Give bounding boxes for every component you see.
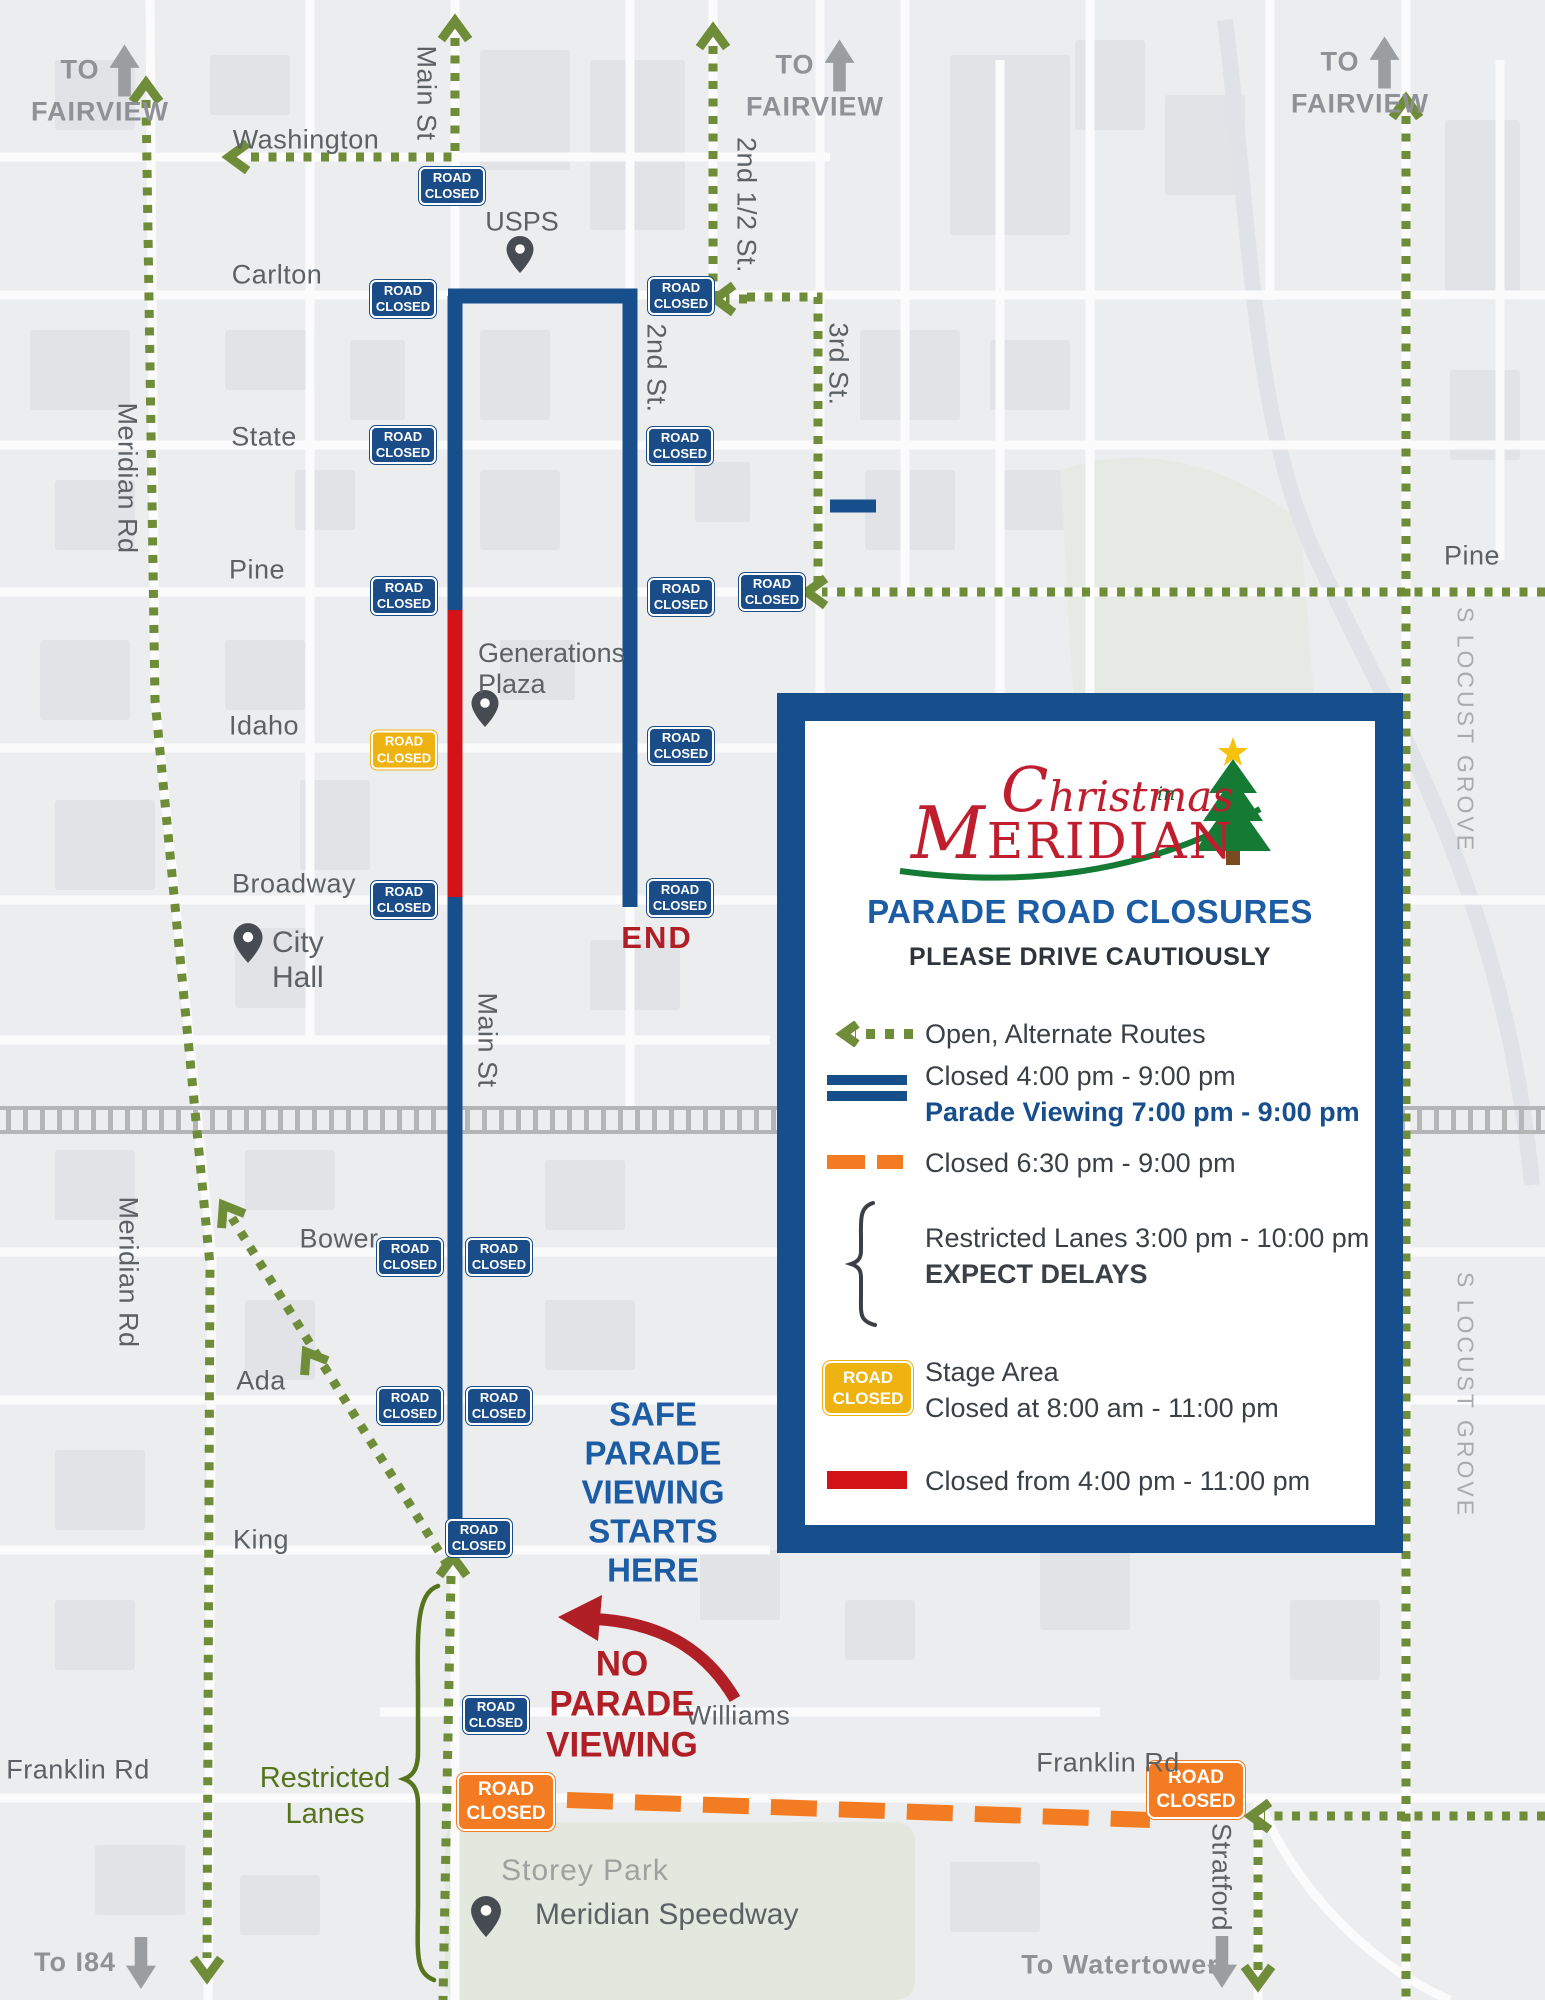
no-parade-viewing-label: NO PARADE VIEWING — [546, 1645, 698, 1766]
street-label-main-st: Main St — [472, 992, 503, 1087]
poi-label-usps: USPS — [485, 206, 559, 237]
safe-viewing-label: SAFE PARADE VIEWING STARTS HERE — [581, 1396, 724, 1591]
legend-box: Christmas in MERIDIAN PARADE ROAD CLOSUR… — [777, 693, 1403, 1553]
street-label-franklin-west: Franklin Rd — [6, 1755, 150, 1786]
street-label-2nd-half-st: 2nd 1/2 St. — [731, 137, 762, 273]
road-closed-badge: ROADCLOSED — [647, 879, 713, 917]
road-closed-badge: ROADCLOSED — [648, 727, 714, 765]
poi-label-storey-park: Storey Park — [501, 1854, 669, 1888]
direction-text: FAIRVIEW — [31, 96, 169, 127]
christmas-in-meridian-logo: Christmas in MERIDIAN — [805, 731, 1375, 891]
road-closed-badge: ROADCLOSED — [463, 1696, 529, 1734]
usps-pin-icon — [507, 236, 534, 278]
road-closed-badge: ROADCLOSED — [370, 426, 436, 464]
road-closed-badge: ROADCLOSED — [371, 881, 437, 919]
street-label-williams: Williams — [686, 1701, 791, 1732]
street-label-pine-east: Pine — [1444, 541, 1500, 572]
road-closed-badge: ROADCLOSED — [371, 577, 437, 615]
street-label-king: King — [233, 1525, 289, 1556]
city-hall-pin-icon — [234, 923, 263, 968]
legend-closed-red-label: Closed from 4:00 pm - 11:00 pm — [925, 1466, 1310, 1497]
street-label-meridian-rd-top: Meridian Rd — [112, 402, 143, 553]
road-closed-badge: ROADCLOSED — [377, 1238, 443, 1276]
up-arrow-icon — [825, 39, 855, 91]
closed-blue-swatch — [825, 1073, 917, 1103]
street-label-stratford: Stratford — [1206, 1823, 1237, 1931]
direction-text: FAIRVIEW — [1291, 88, 1429, 119]
street-label-carlton: Carlton — [232, 260, 323, 291]
street-label-locust-grove-top: S LOCUST GROVE — [1452, 607, 1479, 853]
legend-expect-delays-label: EXPECT DELAYS — [925, 1259, 1148, 1290]
speedway-pin-icon — [471, 1896, 501, 1942]
legend-parade-viewing-label: Parade Viewing 7:00 pm - 9:00 pm — [925, 1097, 1360, 1128]
poi-label-city-hall: City Hall — [272, 926, 324, 995]
direction-text: To Watertower — [1021, 1949, 1219, 1980]
restricted-brace — [843, 1199, 883, 1329]
road-closed-badge: ROADCLOSED — [377, 1387, 443, 1425]
street-label-main-st-top: Main St — [411, 45, 442, 140]
legend-subtitle: PLEASE DRIVE CAUTIOUSLY — [805, 943, 1375, 972]
up-arrow-icon — [1370, 36, 1400, 88]
logo-text-meridian: MERIDIAN — [911, 797, 1234, 869]
legend-stage-label-2: Closed at 8:00 am - 11:00 pm — [925, 1393, 1279, 1424]
road-closed-badge: ROADCLOSED — [648, 578, 714, 616]
stratford-down-arrow — [1207, 1936, 1237, 1988]
direction-text: FAIRVIEW — [746, 91, 884, 122]
stage-area-road-closed-badge: ROADCLOSED — [371, 731, 437, 770]
road-closed-badge: ROADCLOSED — [647, 427, 713, 465]
road-closed-badge: ROADCLOSED — [419, 167, 485, 205]
parade-end-label: END — [621, 920, 692, 956]
road-closed-badge: ROADCLOSED — [466, 1238, 532, 1276]
restricted-lanes-brace — [404, 1586, 438, 1980]
road-closed-badge: ROADCLOSED — [648, 277, 714, 315]
legend-stage-label-1: Stage Area — [925, 1357, 1059, 1388]
street-label-idaho: Idaho — [229, 711, 299, 742]
street-label-2nd-st: 2nd St. — [641, 323, 672, 412]
closed-orange-swatch — [825, 1153, 917, 1171]
direction-text: TO — [1320, 47, 1359, 78]
road-closed-badge: ROADCLOSED — [446, 1519, 512, 1557]
legend-closed-orange-label: Closed 6:30 pm - 9:00 pm — [925, 1148, 1236, 1179]
street-label-state: State — [231, 422, 297, 453]
legend-open-label: Open, Alternate Routes — [925, 1019, 1206, 1050]
closed-route-orange — [567, 1800, 1150, 1820]
up-arrow-icon — [110, 44, 140, 96]
street-label-washington: Washington — [233, 125, 380, 156]
road-closed-badge-orange: ROADCLOSED — [457, 1773, 555, 1831]
road-closed-badge: ROADCLOSED — [466, 1387, 532, 1425]
open-route-swatch — [825, 1021, 917, 1047]
poi-label-generations-plaza: Generations Plaza — [478, 638, 625, 700]
road-closed-badge: ROADCLOSED — [370, 280, 436, 318]
direction-to-fairview-mid: TO FAIRVIEW — [746, 39, 884, 122]
closed-red-swatch — [825, 1469, 917, 1491]
legend-stage-badge: ROADCLOSED — [823, 1361, 913, 1415]
street-label-ada: Ada — [236, 1366, 286, 1397]
direction-text: TO — [60, 55, 99, 86]
direction-text: To I84 — [34, 1947, 116, 1978]
down-arrow-icon — [1207, 1936, 1237, 1988]
direction-to-fairview-left: TO FAIRVIEW — [31, 44, 169, 127]
restricted-lanes-label: Restricted Lanes — [260, 1760, 391, 1833]
road-closed-badge: ROADCLOSED — [739, 573, 805, 611]
down-arrow-icon — [126, 1937, 156, 1989]
street-label-bower: Bower — [299, 1224, 378, 1255]
direction-text: TO — [775, 50, 814, 81]
street-label-franklin-east: Franklin Rd — [1036, 1748, 1180, 1779]
legend-restricted-label: Restricted Lanes 3:00 pm - 10:00 pm — [925, 1223, 1369, 1254]
poi-label-meridian-speedway: Meridian Speedway — [535, 1898, 798, 1933]
direction-to-fairview-right: TO FAIRVIEW — [1291, 36, 1429, 119]
street-label-3rd-st: 3rd St. — [823, 322, 854, 405]
direction-to-watertower: To Watertower — [1021, 1949, 1219, 1980]
legend-panel: Christmas in MERIDIAN PARADE ROAD CLOSUR… — [805, 721, 1375, 1525]
direction-to-i84: To I84 — [34, 1937, 156, 1989]
street-label-pine: Pine — [229, 555, 285, 586]
street-label-broadway: Broadway — [232, 869, 356, 900]
parade-closure-map: ROADCLOSED ROADCLOSED ROADCLOSED ROADCLO… — [0, 0, 1545, 2000]
legend-closed-blue-label: Closed 4:00 pm - 9:00 pm — [925, 1061, 1236, 1092]
street-label-meridian-rd: Meridian Rd — [113, 1196, 144, 1347]
street-label-locust-grove: S LOCUST GROVE — [1452, 1272, 1479, 1518]
legend-title: PARADE ROAD CLOSURES — [805, 893, 1375, 931]
